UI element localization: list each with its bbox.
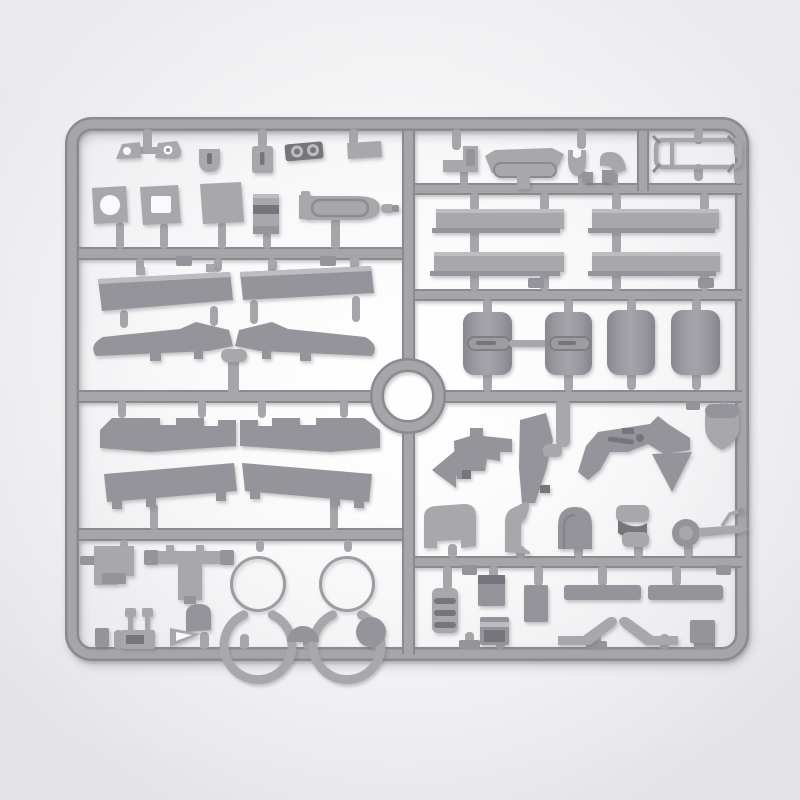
wing-center-joiner <box>221 349 247 362</box>
sprue-photo <box>0 0 800 800</box>
flat-bar-4 <box>588 252 720 276</box>
flat-bar-1 <box>432 209 564 233</box>
folded-strap <box>253 194 279 234</box>
small-box <box>478 575 505 606</box>
small-slab <box>524 585 548 622</box>
small-block <box>95 628 109 647</box>
photo-background <box>0 0 800 800</box>
small-plate <box>347 141 382 159</box>
flat-strip-1 <box>564 585 641 600</box>
lidded-box <box>480 617 509 645</box>
wheel-half-4 <box>671 310 720 375</box>
small-plate-br <box>690 620 715 643</box>
parts-wheels <box>463 310 720 375</box>
wheel-half-3 <box>607 310 655 375</box>
grooved-block <box>432 588 458 633</box>
wheel-link <box>509 340 547 347</box>
flat-bar-3 <box>430 252 564 276</box>
arched-cover <box>558 507 592 549</box>
plain-plate <box>200 182 244 224</box>
flat-strip-2 <box>648 585 723 600</box>
round-disc <box>356 617 386 647</box>
flat-bar-2 <box>588 209 719 233</box>
twin-dial-block <box>284 141 323 161</box>
